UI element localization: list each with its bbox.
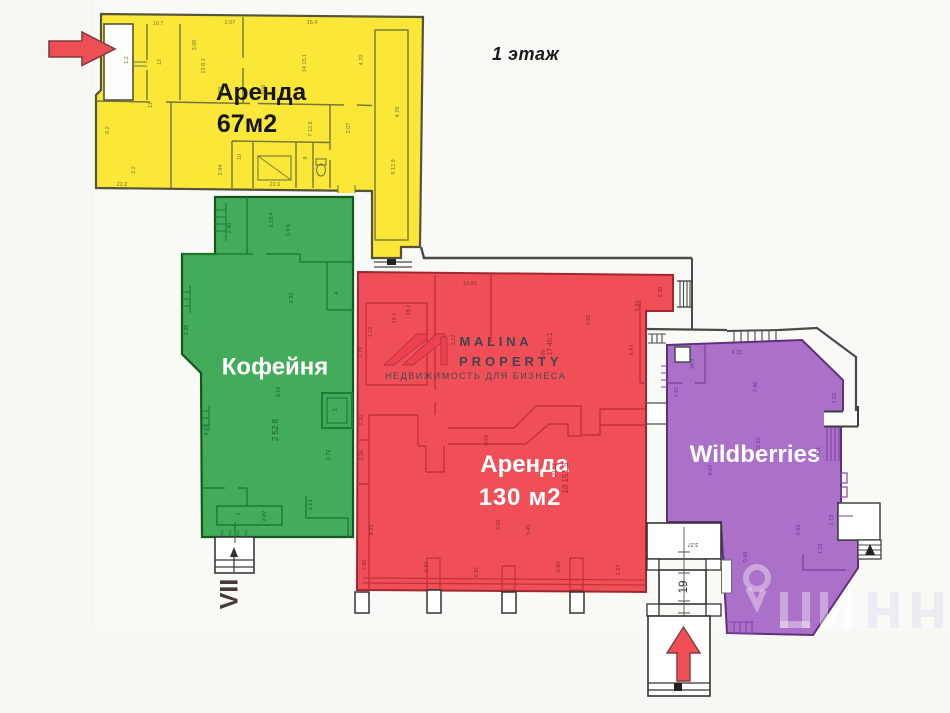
svg-text:3.34: 3.34 — [635, 301, 641, 312]
svg-text:19: 19 — [678, 581, 690, 594]
svg-text:3.45: 3.45 — [526, 525, 532, 536]
svg-text:14 15.1: 14 15.1 — [302, 54, 308, 72]
svg-text:8: 8 — [303, 156, 309, 159]
svg-text:2.40: 2.40 — [227, 223, 233, 234]
svg-text:11.82: 11.82 — [756, 437, 762, 450]
svg-text:1.72: 1.72 — [818, 544, 824, 555]
svg-text:3.02: 3.02 — [496, 520, 502, 531]
svg-text:2.80: 2.80 — [362, 560, 368, 571]
svg-text:18 2: 18 2 — [406, 305, 412, 316]
svg-text:1.02: 1.02 — [832, 393, 838, 404]
svg-text:0.95: 0.95 — [796, 525, 802, 536]
svg-text:3.27: 3.27 — [688, 541, 699, 547]
svg-text:2.07: 2.07 — [346, 123, 352, 134]
svg-text:2 52.8: 2 52.8 — [271, 418, 280, 441]
svg-text:22.6: 22.6 — [270, 182, 281, 188]
svg-text:8.33: 8.33 — [369, 525, 375, 536]
svg-text:2.94: 2.94 — [218, 165, 224, 176]
svg-text:VII: VII — [216, 579, 244, 610]
svg-text:0.98: 0.98 — [743, 552, 749, 563]
svg-text:3.06: 3.06 — [192, 40, 198, 51]
svg-text:7 12.8: 7 12.8 — [308, 121, 314, 136]
svg-text:Wildberries: Wildberries — [690, 441, 821, 468]
svg-text:2.79: 2.79 — [358, 347, 364, 358]
svg-text:22.2: 22.2 — [117, 182, 128, 188]
svg-text:8 12.9: 8 12.9 — [391, 159, 397, 174]
svg-text:20.37: 20.37 — [552, 463, 558, 477]
svg-text:3.12: 3.12 — [451, 335, 457, 346]
svg-text:1 этаж: 1 этаж — [492, 44, 560, 64]
svg-text:4.78: 4.78 — [395, 107, 401, 118]
svg-text:8.31: 8.31 — [816, 447, 822, 458]
svg-text:Кофейня: Кофейня — [222, 354, 329, 381]
svg-text:4.23: 4.23 — [732, 350, 743, 356]
svg-text:4: 4 — [334, 291, 340, 294]
svg-text:5 13.4: 5 13.4 — [269, 212, 275, 227]
svg-text:0.92: 0.92 — [484, 435, 490, 446]
svg-text:10.7: 10.7 — [153, 21, 164, 27]
svg-text:3.06: 3.06 — [261, 85, 267, 96]
svg-text:130 м2: 130 м2 — [479, 484, 562, 511]
svg-text:4.70: 4.70 — [359, 55, 365, 66]
svg-text:0.2: 0.2 — [105, 126, 111, 134]
svg-text:2.07: 2.07 — [225, 20, 236, 26]
svg-text:17 40.1: 17 40.1 — [547, 332, 554, 355]
svg-text:НЕДВИЖИМОСТЬ ДЛЯ БИЗНЕСА: НЕДВИЖИМОСТЬ ДЛЯ БИЗНЕСА — [385, 371, 566, 381]
svg-text:2.2: 2.2 — [131, 166, 137, 174]
svg-text:3.35: 3.35 — [184, 325, 190, 336]
svg-text:6.91: 6.91 — [474, 567, 480, 578]
svg-text:1.13: 1.13 — [308, 500, 314, 511]
svg-text:2.87: 2.87 — [262, 511, 268, 522]
svg-text:0.87: 0.87 — [424, 562, 430, 573]
svg-text:2.39: 2.39 — [658, 287, 664, 298]
svg-text:2.32: 2.32 — [289, 293, 295, 304]
svg-text:67м2: 67м2 — [217, 110, 277, 138]
svg-text:MALINA: MALINA — [460, 334, 533, 349]
svg-text:2.27: 2.27 — [616, 565, 622, 576]
svg-text:7.46: 7.46 — [753, 382, 759, 393]
svg-text:12: 12 — [157, 59, 163, 65]
svg-text:1.9 6: 1.9 6 — [286, 224, 292, 236]
svg-text:2.38: 2.38 — [218, 87, 224, 98]
svg-text:10: 10 — [237, 154, 243, 160]
svg-text:1: 1 — [236, 512, 242, 515]
svg-text:18 151.5: 18 151.5 — [561, 462, 570, 494]
svg-text:2.81: 2.81 — [674, 387, 680, 398]
svg-text:1.2: 1.2 — [124, 56, 130, 64]
svg-text:16 2: 16 2 — [392, 313, 398, 324]
svg-text:4.87: 4.87 — [204, 425, 210, 436]
svg-text:15.4: 15.4 — [307, 20, 318, 26]
svg-text:13.91: 13.91 — [463, 281, 477, 287]
svg-text:2.26: 2.26 — [359, 450, 365, 461]
svg-text:3.19: 3.19 — [276, 387, 282, 398]
svg-text:13 8.1: 13 8.1 — [201, 58, 207, 73]
svg-text:PROPERTY: PROPERTY — [459, 354, 563, 369]
svg-text:2.72: 2.72 — [326, 450, 332, 461]
svg-text:11: 11 — [148, 102, 154, 108]
svg-text:0.85: 0.85 — [556, 562, 562, 573]
svg-text:3: 3 — [333, 408, 339, 411]
svg-text:8.43: 8.43 — [629, 345, 635, 356]
svg-text:1.73: 1.73 — [829, 515, 835, 526]
svg-text:5.82: 5.82 — [586, 315, 592, 326]
svg-text:18 9: 18 9 — [690, 359, 696, 370]
svg-text:8.67: 8.67 — [708, 465, 714, 476]
svg-text:1.72: 1.72 — [368, 327, 374, 338]
svg-text:2.30: 2.30 — [359, 415, 365, 426]
